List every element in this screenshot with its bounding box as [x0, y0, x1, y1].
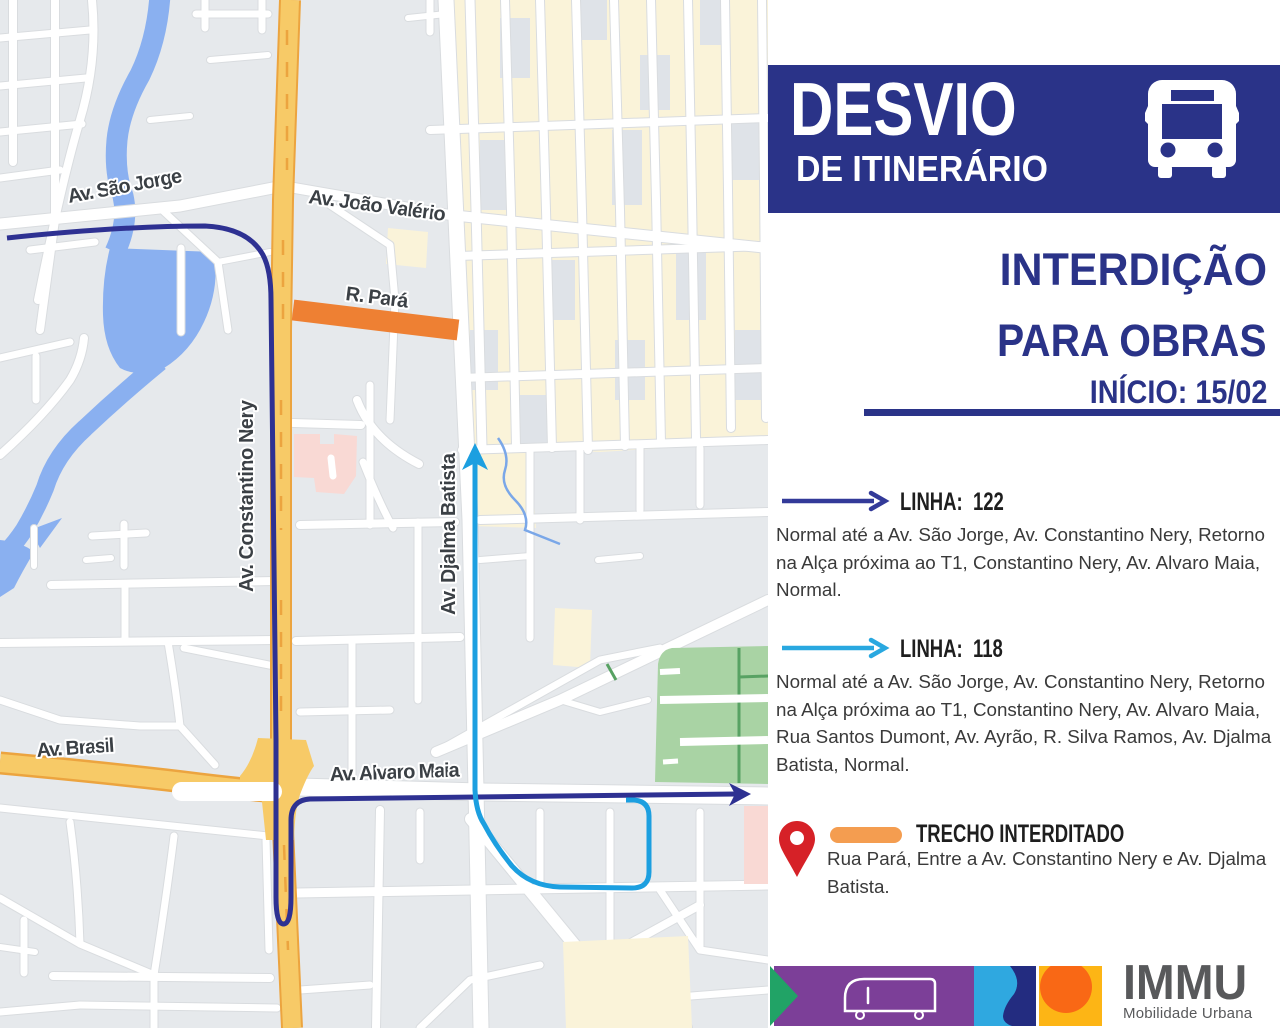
svg-text:Av. Djalma Batista: Av. Djalma Batista: [438, 452, 460, 615]
svg-text:Av. Constantino Nery: Av. Constantino Nery: [236, 399, 258, 592]
svg-text:Av. Alvaro Maia: Av. Alvaro Maia: [329, 759, 461, 786]
